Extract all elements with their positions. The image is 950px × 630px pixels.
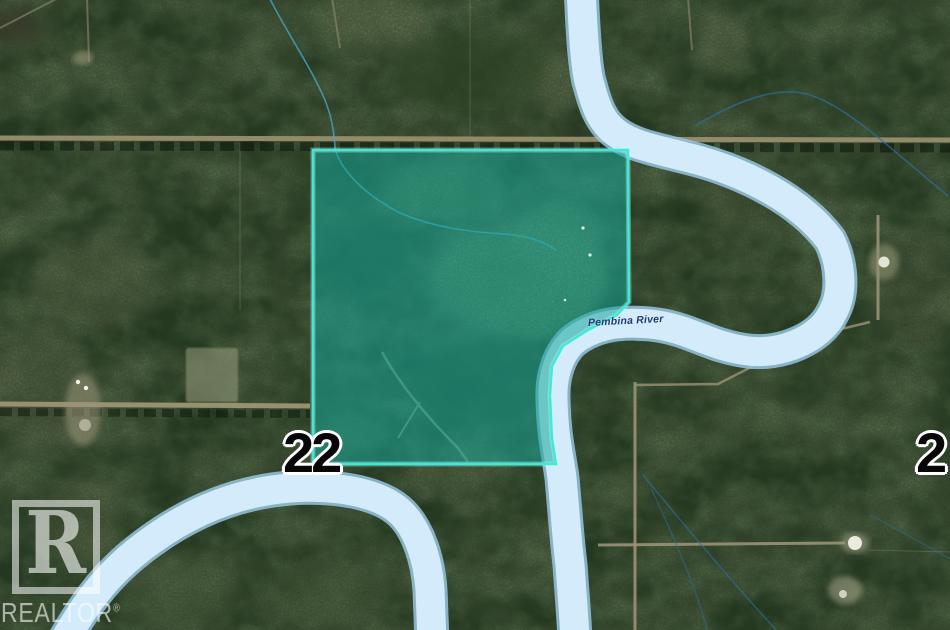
section-number-22: 22 — [283, 425, 339, 481]
parcel-speck — [581, 226, 584, 229]
realtor-watermark: R REALTOR® — [0, 500, 130, 629]
realtor-logo-box: R — [12, 500, 100, 594]
wellsite-pad — [839, 590, 847, 598]
aerial-map: Pembina River 22 2 R REALTOR® — [0, 0, 950, 630]
realtor-logo-r: R — [26, 501, 87, 587]
wellsite-road — [598, 543, 845, 545]
wellsite-pad — [79, 419, 91, 431]
wellsite-pad — [848, 536, 862, 550]
tank-dot — [84, 386, 88, 390]
range-road-top — [0, 138, 950, 140]
wellsite-clearing — [65, 374, 101, 446]
road-tree-shadow — [0, 412, 310, 414]
map-artwork — [0, 0, 950, 630]
parcel-speck — [564, 299, 567, 302]
tank-dot — [76, 380, 80, 384]
realtor-watermark-text: REALTOR® — [1, 597, 107, 629]
realtor-name: REALTOR — [1, 597, 113, 628]
parcel-speck — [588, 253, 591, 256]
section-number-right: 2 — [916, 425, 944, 481]
registered-trademark-icon: ® — [113, 603, 120, 615]
wellsite-clearing — [828, 576, 862, 604]
cleared-field — [186, 348, 238, 402]
township-road-left — [0, 404, 310, 406]
clearing-pad — [73, 51, 93, 65]
wellsite-pad — [879, 257, 890, 268]
